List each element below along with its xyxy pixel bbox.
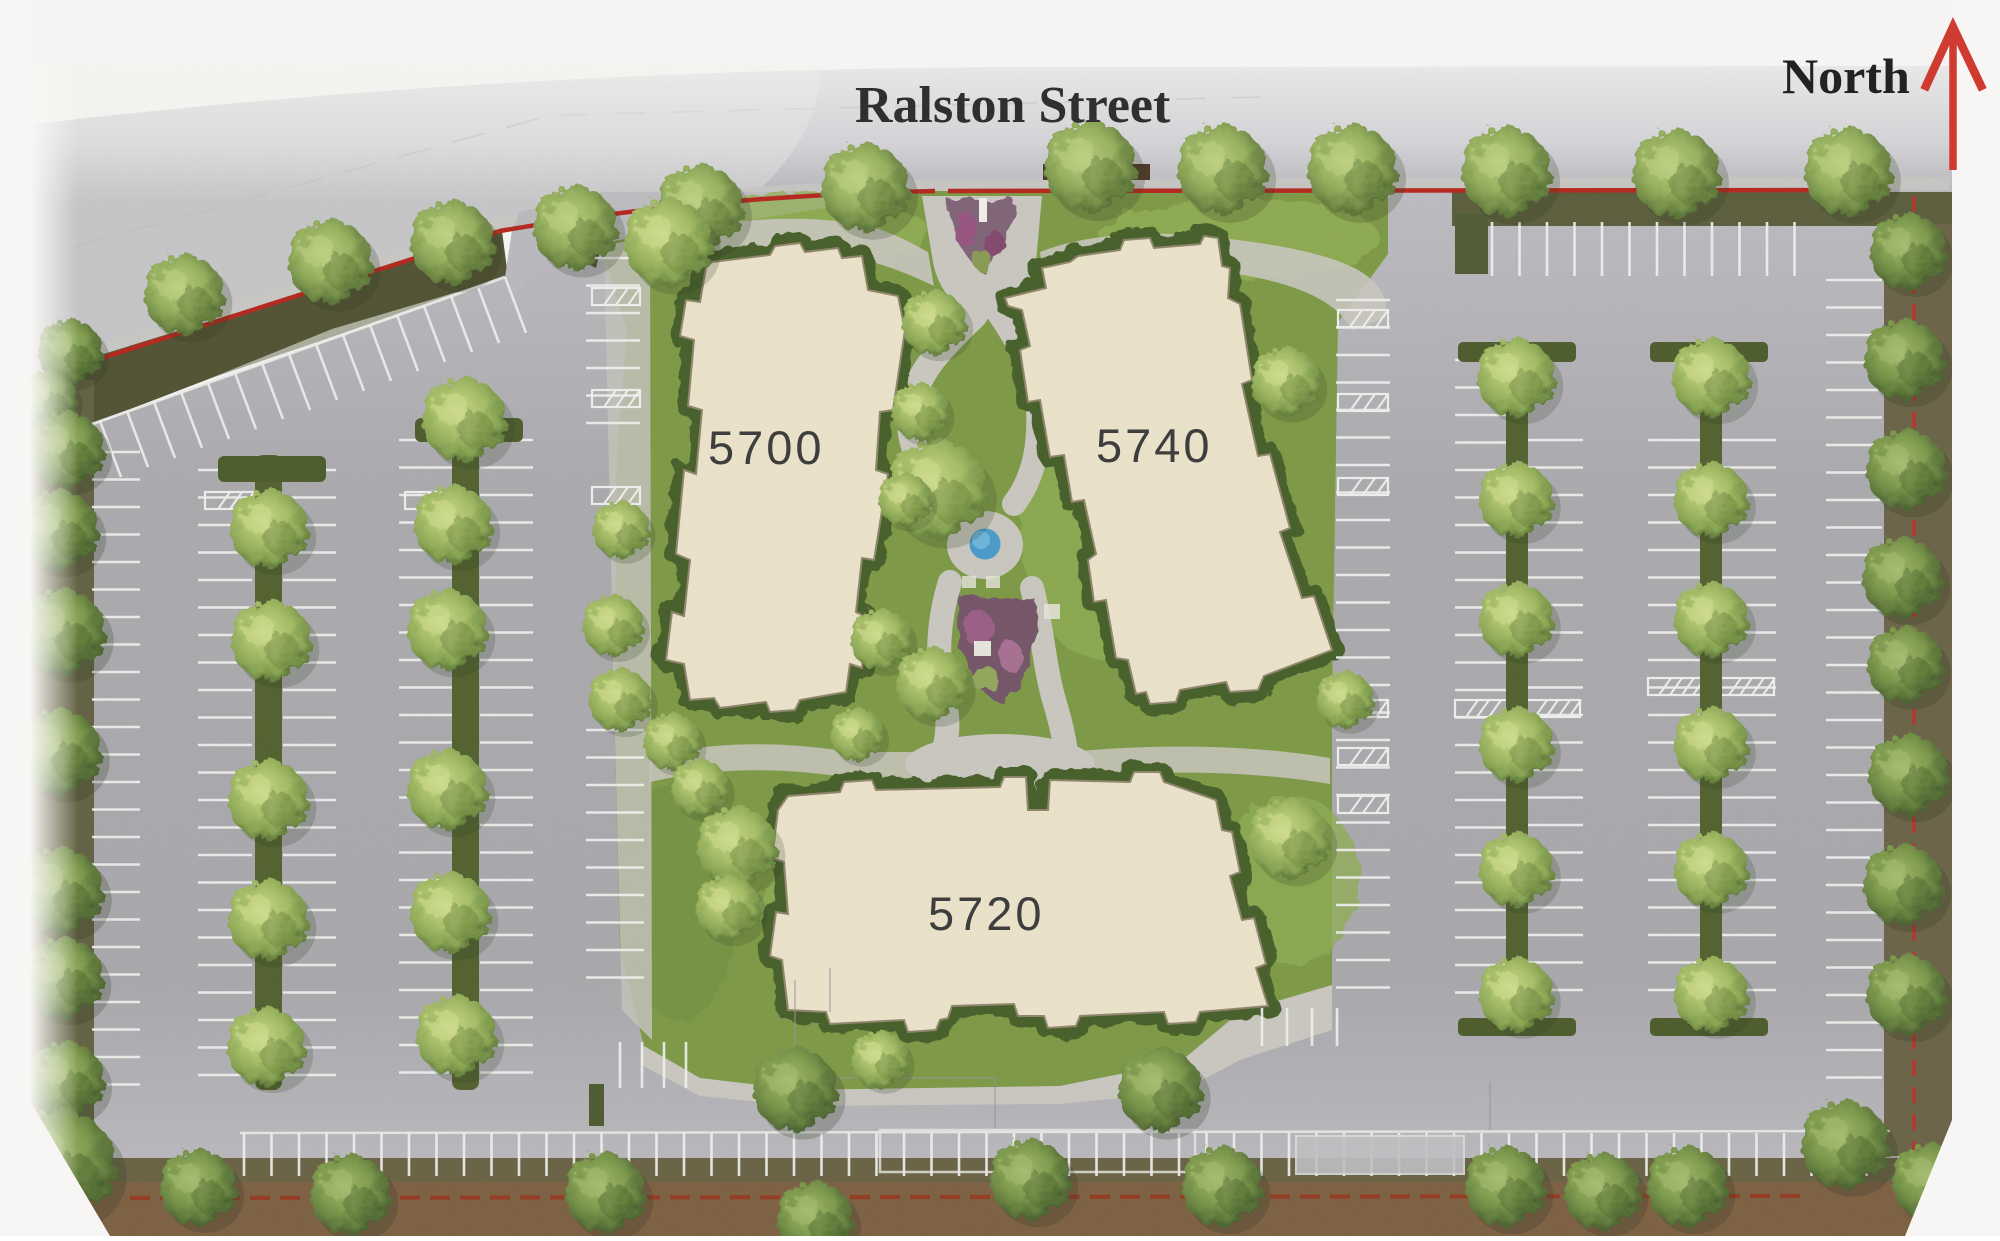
svg-text:North: North bbox=[1782, 48, 1910, 104]
svg-text:Ralston Street: Ralston Street bbox=[855, 77, 1171, 134]
